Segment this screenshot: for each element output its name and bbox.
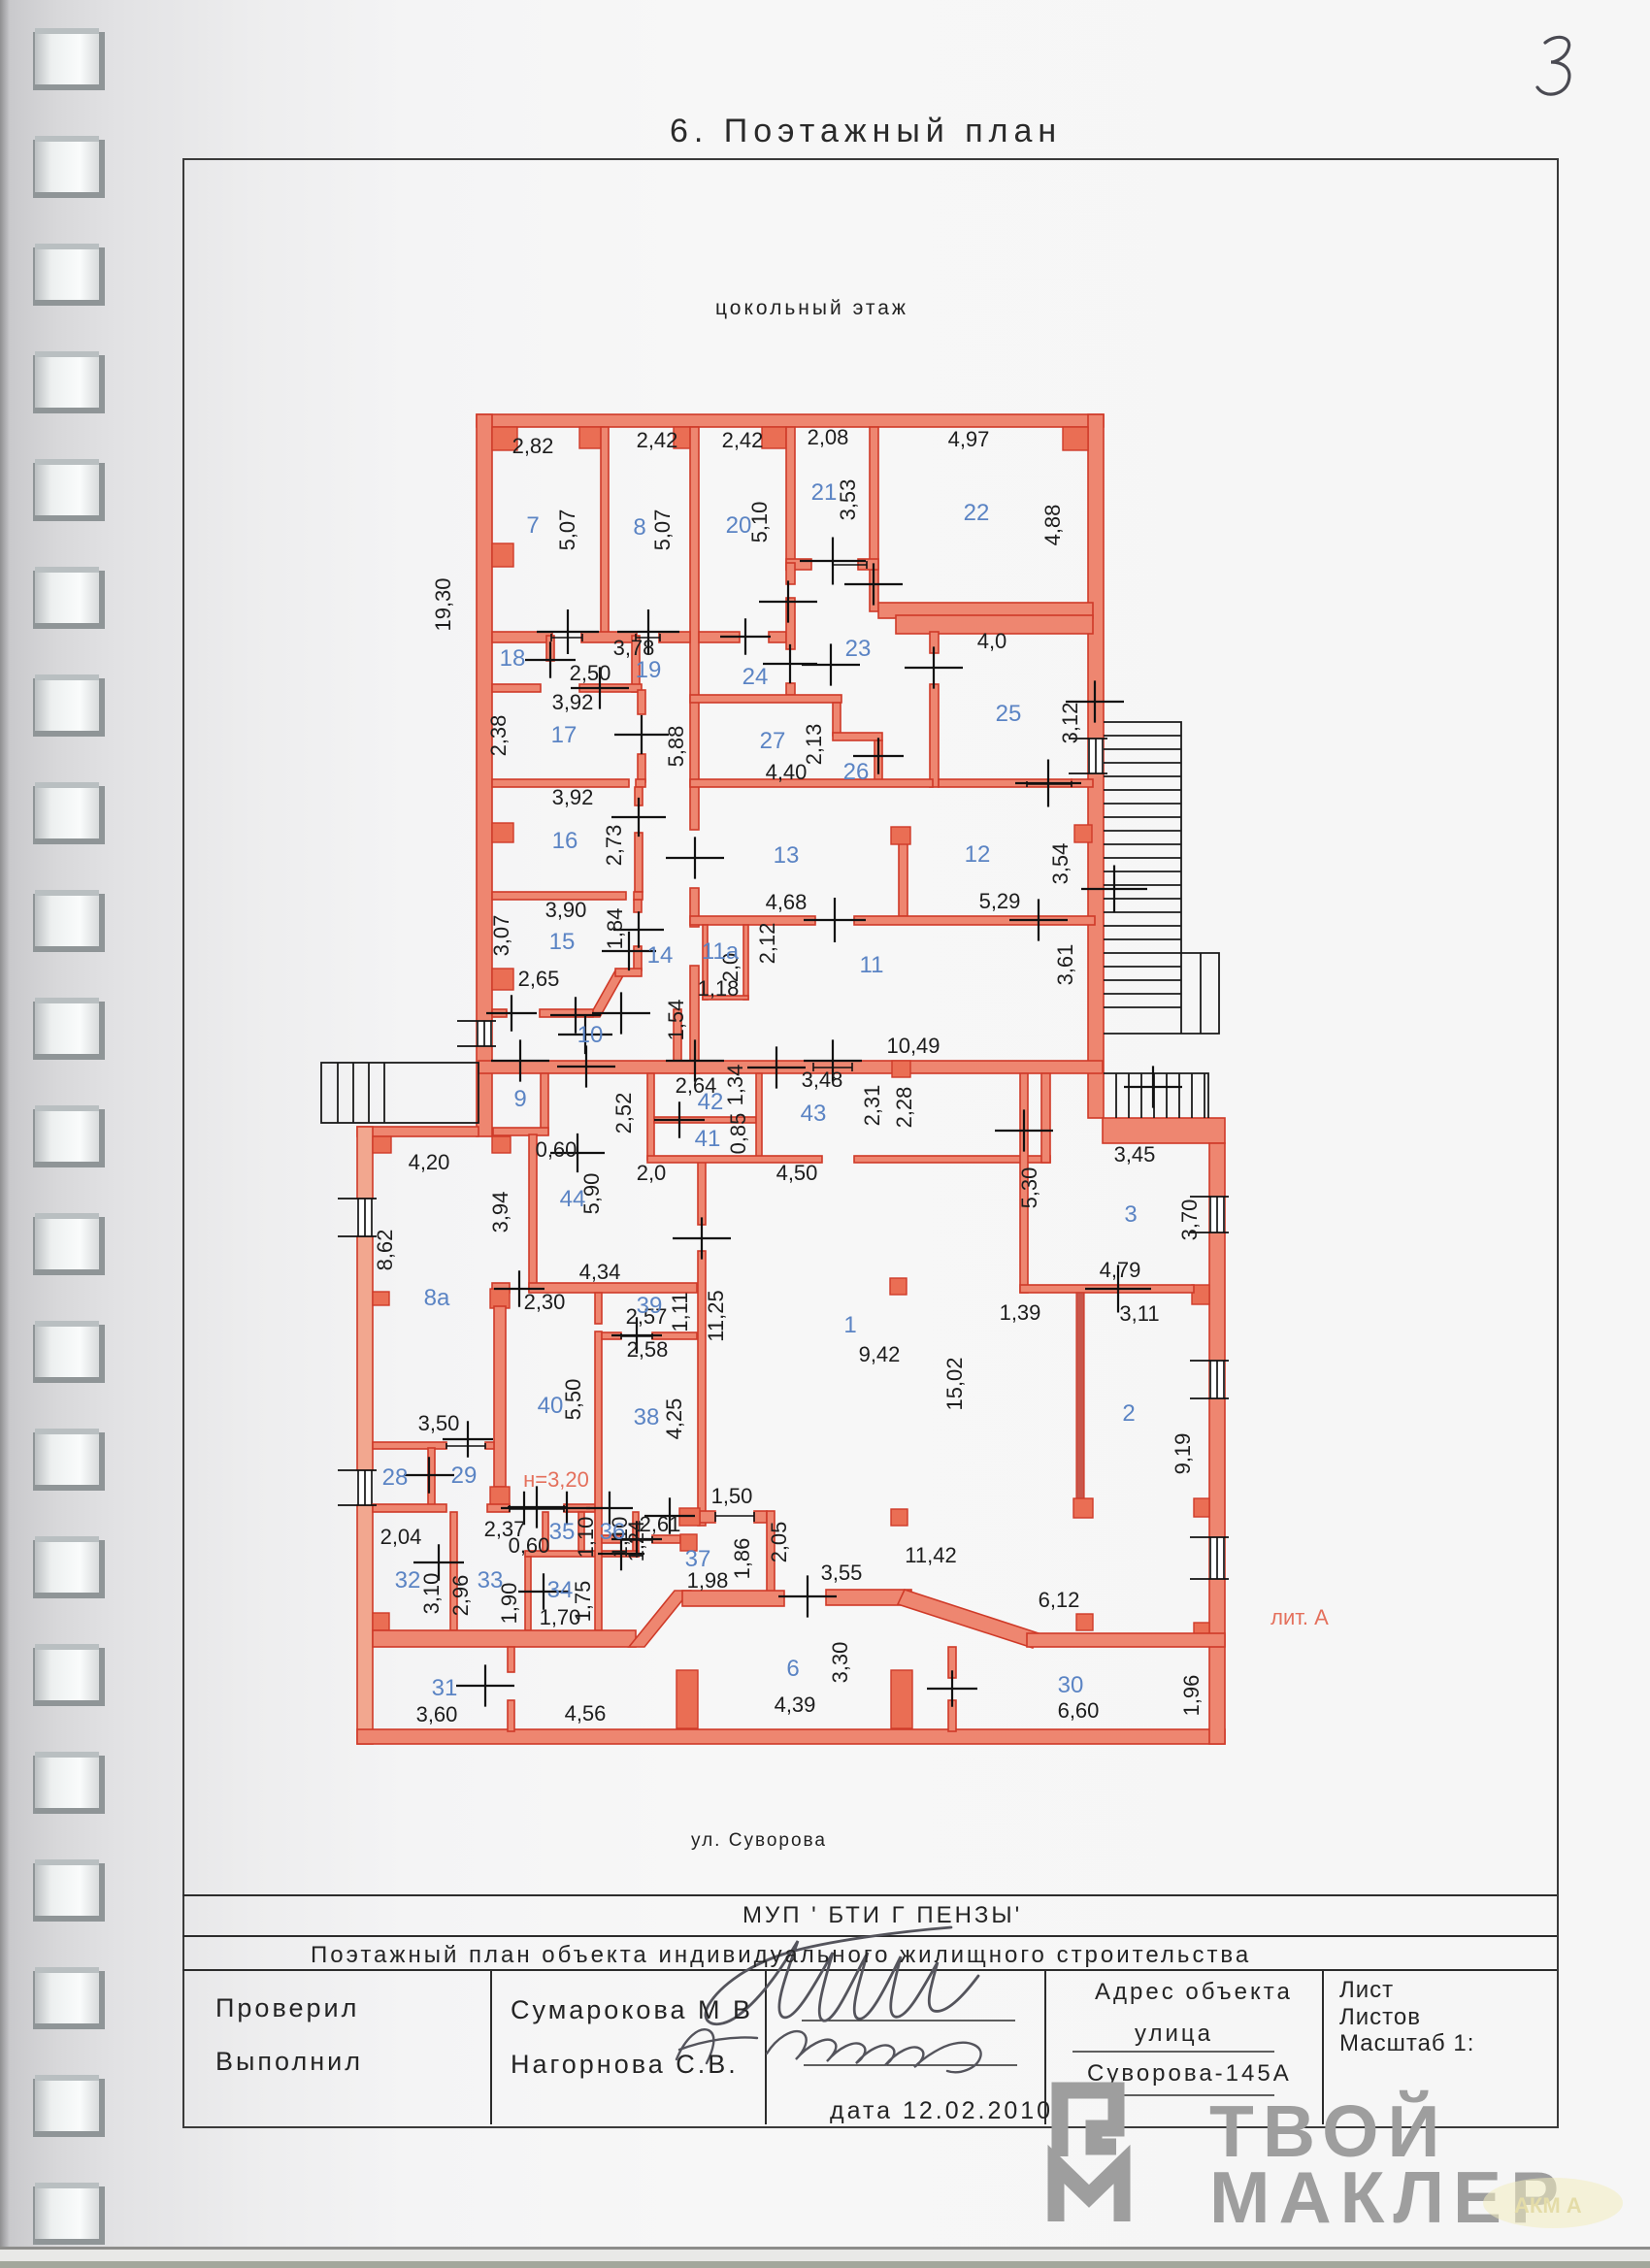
svg-text:АКМ А: АКМ А xyxy=(1514,2193,1582,2218)
